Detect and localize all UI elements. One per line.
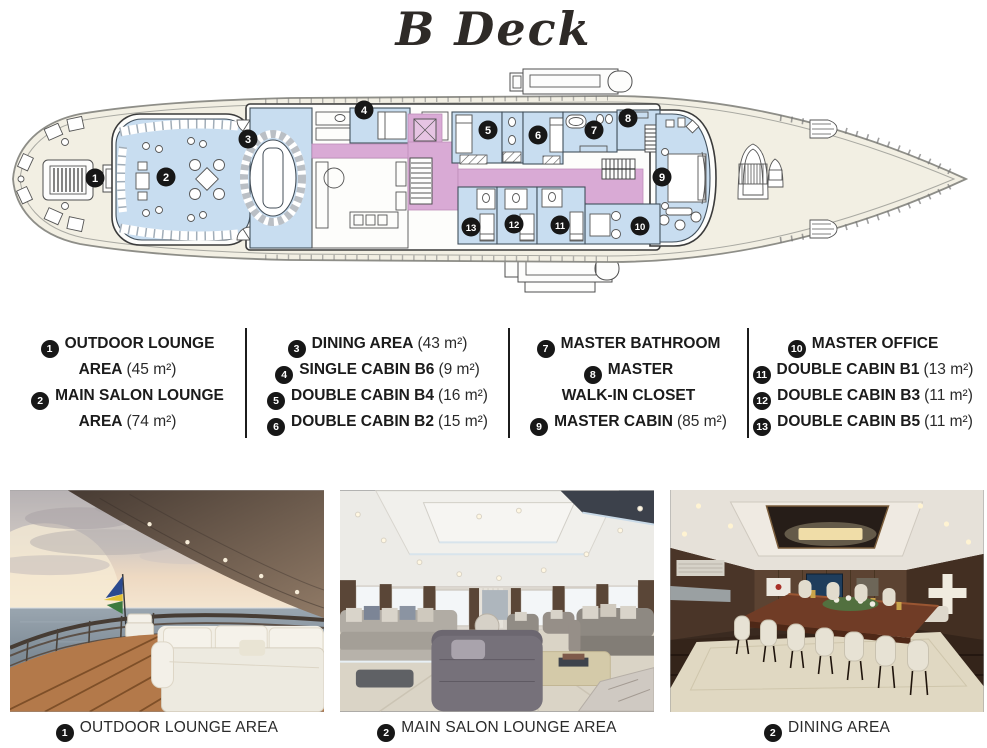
- legend-badge: 8: [584, 366, 602, 384]
- plan-marker-7: 7: [585, 121, 604, 140]
- svg-text:6: 6: [535, 130, 541, 142]
- plan-marker-8: 8: [619, 109, 638, 128]
- svg-text:4: 4: [361, 105, 368, 117]
- caption-main-salon-lounge-area: 2MAIN SALON LOUNGE AREA: [340, 719, 654, 742]
- bench: [356, 670, 414, 688]
- plan-marker-13: 13: [462, 218, 481, 237]
- plan-marker-2: 2: [157, 168, 176, 187]
- legend-badge: 11: [753, 366, 771, 384]
- legend-item: 1OUTDOOR LOUNGE: [10, 331, 245, 357]
- svg-text:2: 2: [163, 172, 169, 184]
- crew-stairs: [410, 158, 432, 204]
- photo-row: [10, 490, 984, 712]
- guest-cabins-bottom: [458, 187, 585, 244]
- svg-text:13: 13: [466, 223, 477, 234]
- page-title: B Deck: [0, 0, 987, 56]
- legend-item: 11DOUBLE CABIN B1(13 m²): [749, 357, 977, 383]
- legend-item: 3DINING AREA(43 m²): [247, 331, 508, 357]
- photo-main-salon-lounge-area: [340, 490, 654, 712]
- svg-text:7: 7: [591, 125, 597, 137]
- legend-badge: 1: [41, 340, 59, 358]
- brochure-page: B Deck: [0, 0, 987, 748]
- legend-column-3: 7MASTER BATHROOM 8MASTER WALK-IN CLOSET …: [510, 328, 749, 438]
- legend-item: 12DOUBLE CABIN B3(11 m²): [749, 383, 977, 409]
- main-salon-room: [116, 119, 250, 240]
- ottoman: [535, 652, 611, 686]
- photo-outdoor-lounge-area: [10, 490, 324, 712]
- plan-marker-5: 5: [479, 121, 498, 140]
- plan-marker-12: 12: [505, 215, 524, 234]
- legend-badge: 9: [530, 418, 548, 436]
- legend-column-1: 1OUTDOOR LOUNGE AREA(45 m²) 2MAIN SALON …: [10, 328, 247, 438]
- caption-badge: 1: [56, 724, 74, 742]
- plan-marker-6: 6: [529, 126, 548, 145]
- caption-outdoor-lounge-area: 1OUTDOOR LOUNGE AREA: [10, 719, 324, 742]
- legend-item: WALK-IN CLOSET: [510, 383, 747, 409]
- legend-column-2: 3DINING AREA(43 m²) 4SINGLE CABIN B6(9 m…: [247, 328, 510, 438]
- legend-item: 7MASTER BATHROOM: [510, 331, 747, 357]
- svg-text:9: 9: [659, 172, 665, 184]
- legend-badge: 7: [537, 340, 555, 358]
- svg-text:11: 11: [555, 221, 566, 232]
- legend-item: 10MASTER OFFICE: [749, 331, 977, 357]
- legend-column-4: 10MASTER OFFICE 11DOUBLE CABIN B1(13 m²)…: [749, 328, 977, 438]
- legend-item: AREA(45 m²): [10, 357, 245, 383]
- legend-item: 5DOUBLE CABIN B4(16 m²): [247, 383, 508, 409]
- legend-badge: 5: [267, 392, 285, 410]
- caption-badge: 2: [764, 724, 782, 742]
- plan-marker-1: 1: [86, 169, 105, 188]
- deck-plan: 12345678910111213: [10, 62, 980, 300]
- legend-badge: 10: [788, 340, 806, 358]
- top-gangway-platform: [510, 69, 632, 94]
- legend-item: AREA(74 m²): [10, 409, 245, 435]
- legend-item: 8MASTER: [510, 357, 747, 383]
- svg-text:12: 12: [509, 220, 520, 231]
- legend: 1OUTDOOR LOUNGE AREA(45 m²) 2MAIN SALON …: [10, 328, 977, 438]
- chandelier: [799, 528, 863, 540]
- legend-badge: 3: [288, 340, 306, 358]
- svg-text:5: 5: [485, 125, 491, 137]
- plan-marker-9: 9: [653, 168, 672, 187]
- plan-marker-10: 10: [631, 217, 650, 236]
- caption-dining-area: 2DINING AREA: [670, 719, 984, 742]
- dining-room: [244, 108, 312, 248]
- caption-row: 1OUTDOOR LOUNGE AREA 2MAIN SALON LOUNGE …: [10, 719, 984, 742]
- caption-badge: 2: [377, 724, 395, 742]
- stern-stairs: [43, 160, 93, 200]
- legend-badge: 2: [31, 392, 49, 410]
- legend-item: 4SINGLE CABIN B6(9 m²): [247, 357, 508, 383]
- legend-item: 2MAIN SALON LOUNGE: [10, 383, 245, 409]
- legend-item: 9MASTER CABIN(85 m²): [510, 409, 747, 435]
- photo-dining-area: [670, 490, 984, 712]
- main-stairs: [602, 159, 635, 179]
- plan-marker-11: 11: [551, 216, 570, 235]
- svg-text:3: 3: [245, 134, 251, 146]
- outdoor-sofa: [152, 626, 324, 712]
- right-sofa: [569, 604, 654, 656]
- plan-marker-4: 4: [355, 101, 374, 120]
- foreground-sofa: [431, 630, 542, 711]
- legend-item: 13DOUBLE CABIN B5(11 m²): [749, 409, 977, 435]
- legend-badge: 13: [753, 418, 771, 436]
- legend-item: 6DOUBLE CABIN B2(15 m²): [247, 409, 508, 435]
- plan-marker-3: 3: [239, 130, 258, 149]
- svg-text:8: 8: [625, 113, 631, 125]
- svg-text:10: 10: [635, 222, 646, 233]
- svg-text:1: 1: [92, 173, 98, 185]
- legend-badge: 4: [275, 366, 293, 384]
- legend-badge: 6: [267, 418, 285, 436]
- legend-badge: 12: [753, 392, 771, 410]
